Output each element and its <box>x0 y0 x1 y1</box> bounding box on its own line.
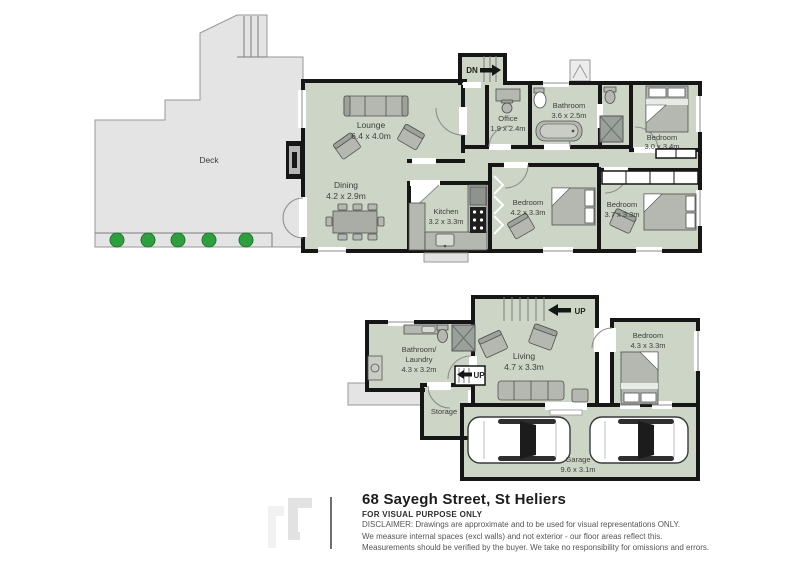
garage-dims: 9.6 x 3.1m <box>560 465 595 474</box>
brand-logo <box>264 496 316 550</box>
footer-divider <box>330 497 332 549</box>
deck-area: Deck <box>95 15 303 247</box>
stairs-dn-label: DN <box>466 66 478 75</box>
bathroom-laundry-dims: 4.3 x 3.2m <box>401 365 436 374</box>
garage-label: Garage <box>565 455 590 464</box>
bathroom-dims: 3.6 x 2.5m <box>551 111 586 120</box>
disclaimer-line-3: Measurements should be verified by the b… <box>362 543 782 554</box>
upper-floor-plan: DN <box>283 53 704 262</box>
bedroom-mid-dims: 4.2 x 3.3m <box>510 208 545 217</box>
living-label: Living <box>513 351 535 361</box>
bathroom-label: Bathroom <box>553 101 586 110</box>
car-icon <box>590 417 688 463</box>
disclaimer-line-2: We measure internal spaces (excl walls) … <box>362 532 782 543</box>
bedroom-lower-furniture <box>621 352 658 404</box>
brand-logo-front-shape <box>288 498 312 540</box>
property-address: 68 Sayegh Street, St Heliers <box>362 491 782 508</box>
washing-machine <box>368 356 382 380</box>
bedroom-top-dims: 3.0 x 3.4m <box>644 142 679 151</box>
office-label: Office <box>498 114 517 123</box>
garage-step <box>550 410 582 415</box>
lounge-dims: 6.4 x 4.0m <box>351 131 391 141</box>
bathroom-laundry-label-2: Laundry <box>405 355 432 364</box>
kitchen-sink <box>436 234 454 246</box>
stairs-up-mid: UP <box>455 366 485 385</box>
fireplace <box>286 141 303 179</box>
disclaimer-line-1: DISCLAIMER: Drawings are approximate and… <box>362 520 782 531</box>
stairs-up-top-label: UP <box>574 307 586 316</box>
plant-icon <box>141 233 155 247</box>
car-icon <box>468 417 570 463</box>
bedroom-top-furniture <box>646 86 688 132</box>
kitchen-dims: 3.2 x 3.3m <box>428 217 463 226</box>
oven <box>470 187 486 205</box>
footer-text-block: 68 Sayegh Street, St Heliers FOR VISUAL … <box>362 491 782 554</box>
storage-label: Storage <box>431 407 457 416</box>
kitchen-label: Kitchen <box>433 207 458 216</box>
living-dims: 4.7 x 3.3m <box>504 362 544 372</box>
bedroom-lower-dims: 4.3 x 3.3m <box>630 341 665 350</box>
shower <box>452 325 475 351</box>
lower-floor-plan: UP UP <box>348 295 702 481</box>
plant-icon <box>239 233 253 247</box>
lounge-label: Lounge <box>357 120 386 130</box>
stairs-up-mid-label: UP <box>473 371 485 380</box>
dining-label: Dining <box>334 180 358 190</box>
deck-label: Deck <box>199 155 219 165</box>
bedroom-right-label: Bedroom <box>607 200 637 209</box>
bedroom-lower-label: Bedroom <box>633 331 663 340</box>
footer: 68 Sayegh Street, St Heliers FOR VISUAL … <box>0 490 800 565</box>
dining-dims: 4.2 x 2.9m <box>326 191 366 201</box>
closet-bedroom-right <box>602 171 698 184</box>
plant-icon <box>202 233 216 247</box>
purpose-note: FOR VISUAL PURPOSE ONLY <box>362 510 782 519</box>
shower <box>600 116 623 142</box>
bedroom-top-label: Bedroom <box>647 133 677 142</box>
bedroom-mid-label: Bedroom <box>513 198 543 207</box>
porch-step <box>424 253 468 262</box>
brand-logo-back-shape <box>268 506 284 548</box>
office-dims: 1.9 x 2.4m <box>490 124 525 133</box>
floor-plan-drawing: Deck <box>0 0 800 490</box>
plant-icon <box>171 233 185 247</box>
bathroom-laundry-label-1: Bathroom/ <box>402 345 438 354</box>
stove <box>470 207 486 233</box>
floor-plan-page: Deck <box>0 0 800 565</box>
plant-icon <box>110 233 124 247</box>
bedroom-right-dims: 3.7 x 3.3m <box>604 210 639 219</box>
